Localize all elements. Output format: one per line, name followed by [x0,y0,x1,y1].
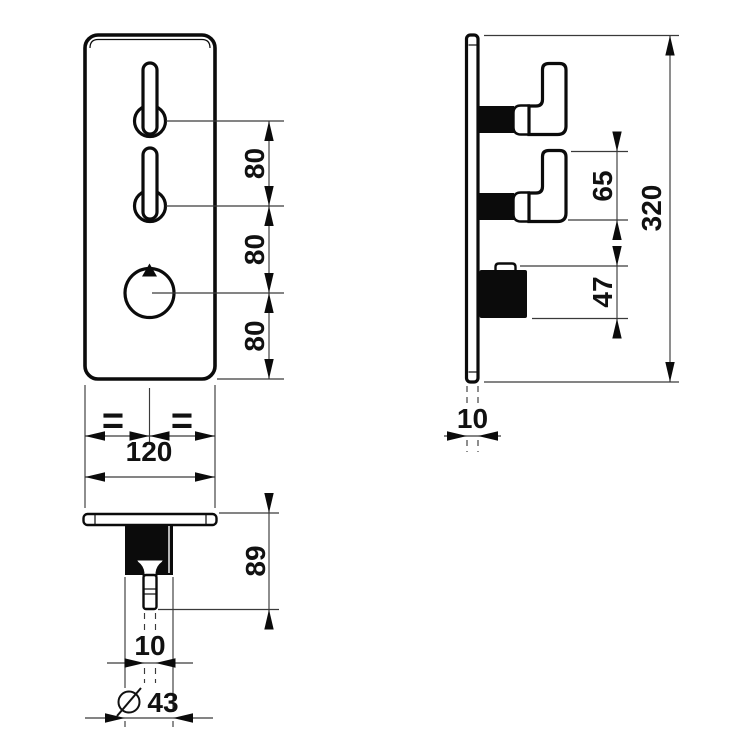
handle-1-side [529,64,566,135]
side-dimension-thickness: 10 [444,386,501,452]
front-view [85,35,215,379]
handle-2-lever [143,148,157,219]
technical-drawing: 80 80 80 = = 120 89 [0,0,750,750]
dim-label-width: 120 [126,436,173,467]
dim-label-spacing-middle: 80 [239,234,270,265]
side-view [467,35,567,382]
dim-label-stem-width: 10 [134,630,165,661]
faceplate-side [467,35,479,382]
faceplate-bottom [84,514,217,525]
dim-label-plate-thickness: 10 [457,403,488,434]
knob-side [480,270,528,318]
handle-stem [144,575,157,609]
technical-drawing-page: 80 80 80 = = 120 89 [0,0,750,750]
dim-label-knob-diameter: 43 [147,687,178,718]
side-dimension-handle-gap: 65 [568,132,628,241]
dim-label-overall-height: 320 [636,185,667,232]
diameter-symbol-icon [117,688,141,716]
handle-2-side [529,151,566,222]
handle-2-mount [478,193,514,220]
bottom-view [84,514,217,609]
knob-button-side [496,264,516,271]
dim-label-knob-height: 47 [587,276,618,307]
handle-1-lever [143,63,157,134]
side-dimension-knob-height: 47 [520,246,628,339]
equal-mark-left: = [102,400,124,442]
handle-1-mount [478,106,514,133]
dim-label-handle-gap: 65 [587,170,618,201]
equal-mark-right: = [171,400,193,442]
dim-label-spacing-bottom: 80 [239,320,270,351]
front-dimensions-horizontal: = = 120 [85,385,215,508]
dim-label-depth: 89 [240,545,271,576]
dim-label-spacing-top: 80 [239,148,270,179]
